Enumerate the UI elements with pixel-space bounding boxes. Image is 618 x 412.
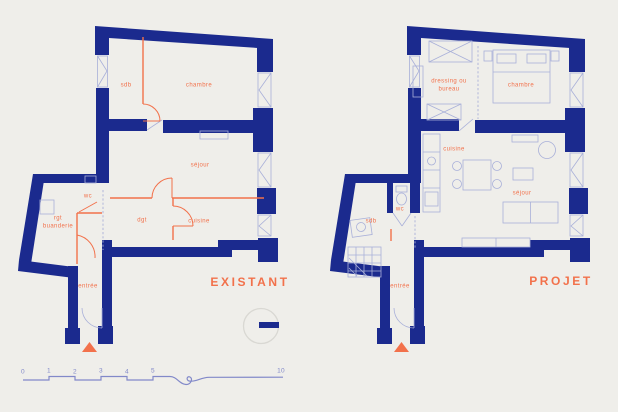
room-label-entree: entrée [78, 284, 97, 291]
wall [387, 175, 393, 213]
room-label-buanderie: buanderie [43, 224, 73, 231]
wall [410, 172, 420, 213]
door-swing-icon [143, 104, 160, 121]
coffee-table-icon [513, 168, 533, 180]
scale-tick-3: 3 [99, 368, 103, 375]
dining-table-icon [453, 160, 502, 190]
door-leaf-icon [459, 119, 473, 131]
scale-tick-4: 4 [125, 369, 129, 376]
scale-tick-2: 2 [73, 369, 77, 376]
entrance-arrow-icon [394, 342, 409, 352]
floor-plan-canvas [0, 0, 618, 412]
north-circle-symbol [244, 309, 280, 344]
scale-tick-0: 0 [21, 369, 25, 376]
existant-plan [18, 26, 278, 352]
projet-furniture [348, 41, 559, 277]
washing-machine-icon [40, 200, 54, 214]
sofa-icon [503, 202, 558, 223]
scale-tick-1: 1 [47, 368, 51, 375]
armchair-icon [539, 142, 556, 159]
door-leaf-icon [79, 202, 97, 212]
bed-icon [484, 50, 559, 103]
kitchen-counter-icon [423, 134, 440, 212]
room-label-dressing: dressing ou [431, 79, 466, 86]
room-label-chambre-2: chambre [508, 83, 534, 90]
room-label-sejour-2: séjour [513, 191, 532, 198]
projet-building-shell [330, 26, 590, 344]
room-label-dgt: dgt [137, 218, 147, 225]
scale-bar-line [23, 377, 283, 385]
door-swing-icon [77, 235, 95, 258]
scale-tick-10: 10 [277, 368, 285, 375]
radiator-icon [512, 135, 538, 142]
scale-tick-5: 5 [151, 368, 155, 375]
wardrobe-icon [427, 104, 461, 120]
room-label-sdb: sdb [121, 83, 132, 90]
room-label-bureau: bureau [438, 87, 459, 94]
door-swing-icon [152, 178, 172, 198]
room-label-wc: wc [84, 194, 92, 201]
room-label-chambre: chambre [186, 83, 212, 90]
room-label-wc-2: wc [396, 207, 404, 214]
bench-icon [462, 238, 530, 247]
room-label-sdb-2: sdb [366, 219, 377, 226]
existant-details [40, 120, 228, 250]
architectural-drawing-page: sdb chambre séjour wc rgt buanderie dgt … [0, 0, 618, 412]
toilet-icon [396, 186, 407, 205]
entrance-arrow-icon [82, 342, 97, 352]
plan-title-projet: PROJET [529, 274, 593, 288]
wardrobe-icon [429, 41, 472, 62]
room-label-cuisine: cuisine [188, 219, 209, 226]
projet-plan [330, 26, 590, 352]
room-label-sejour: séjour [191, 163, 210, 170]
room-label-entree-2: entrée [390, 284, 409, 291]
door-leaf-icon [393, 213, 411, 226]
room-label-rgt: rgt [54, 216, 62, 223]
existant-building-shell [18, 26, 278, 344]
plan-title-existant: EXISTANT [210, 275, 289, 289]
room-label-cuisine-2: cuisine [443, 147, 464, 154]
